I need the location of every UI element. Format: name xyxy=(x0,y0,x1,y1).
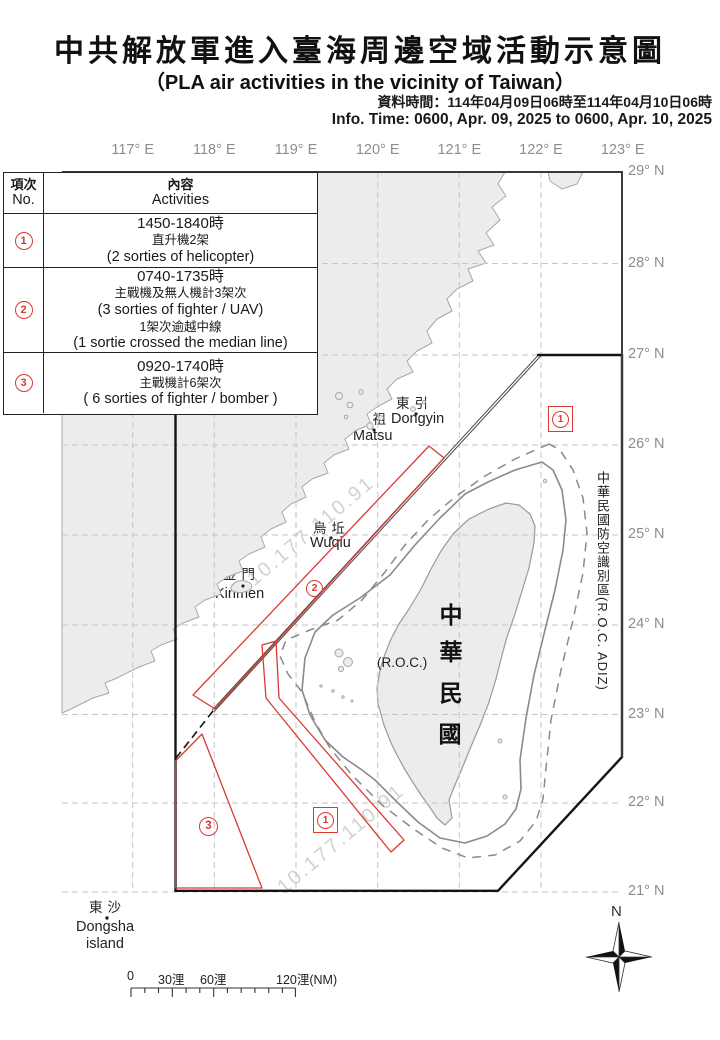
row-2-desc-zh: 主戰機及無人機計3架次 xyxy=(115,285,247,302)
row-2-note-en: (1 sortie crossed the median line) xyxy=(73,335,287,352)
adiz-dashed-link xyxy=(176,711,213,758)
scale-bar xyxy=(131,988,295,997)
table-header-no-en: No. xyxy=(12,192,35,208)
row-2-desc-en: (3 sorties of fighter / UAV) xyxy=(98,302,264,319)
map-canvas xyxy=(0,0,720,1040)
table-header-activities-zh: 內容 xyxy=(167,178,193,192)
table-header-row: 項次 No. 內容 Activities xyxy=(4,173,317,214)
row-2-note-zh: 1架次逾越中線 xyxy=(140,319,222,336)
table-header-no-zh: 項次 xyxy=(10,178,36,192)
row-1-time: 1450-1840時 xyxy=(137,215,224,232)
area-3-zone xyxy=(176,734,263,888)
marker-1-south-digit: 1 xyxy=(317,812,334,829)
table-row-1: 1 1450-1840時 直升機2架 (2 sorties of helicop… xyxy=(4,214,317,268)
table-row-2: 2 0740-1735時 主戰機及無人機計3架次 (3 sorties of f… xyxy=(4,268,317,353)
row-2-number: 2 xyxy=(15,301,33,319)
compass-rose xyxy=(586,922,652,992)
row-1-desc-zh: 直升機2架 xyxy=(152,232,209,249)
row-3-desc-en: ( 6 sorties of fighter / bomber ) xyxy=(83,391,277,408)
island-label-char-4: 國 xyxy=(436,715,464,749)
island-roc-label: (R.O.C.) xyxy=(377,655,427,670)
marker-2: 2 xyxy=(306,580,323,597)
island-label-char-2: 華 xyxy=(437,633,465,667)
island-label-char-1: 中 xyxy=(437,596,465,630)
island-label-char-3: 民 xyxy=(437,674,465,708)
marker-1-north: 1 xyxy=(548,406,573,432)
row-2-time: 0740-1735時 xyxy=(137,268,224,285)
map-poster: 中共解放軍進入臺海周邊空域活動示意圖 （PLA air activities i… xyxy=(0,0,720,1040)
table-header-activities-en: Activities xyxy=(152,192,209,208)
row-1-desc-en: (2 sorties of helicopter) xyxy=(107,249,254,266)
row-3-number: 3 xyxy=(15,374,33,392)
islet-north xyxy=(548,172,583,189)
adiz-label: 中華民國防空識別區(R.O.C. ADIZ) xyxy=(593,471,612,716)
row-3-desc-zh: 主戰機計6架次 xyxy=(140,375,222,392)
marker-3: 3 xyxy=(199,817,218,836)
row-1-number: 1 xyxy=(15,232,33,250)
marker-1-south: 1 xyxy=(313,807,338,833)
row-3-time: 0920-1740時 xyxy=(137,358,224,375)
marker-1-north-digit: 1 xyxy=(552,411,569,428)
activities-table: 項次 No. 內容 Activities 1 1450-1840時 直升機2架 … xyxy=(3,172,318,415)
table-row-3: 3 0920-1740時 主戰機計6架次 ( 6 sorties of figh… xyxy=(4,353,317,413)
